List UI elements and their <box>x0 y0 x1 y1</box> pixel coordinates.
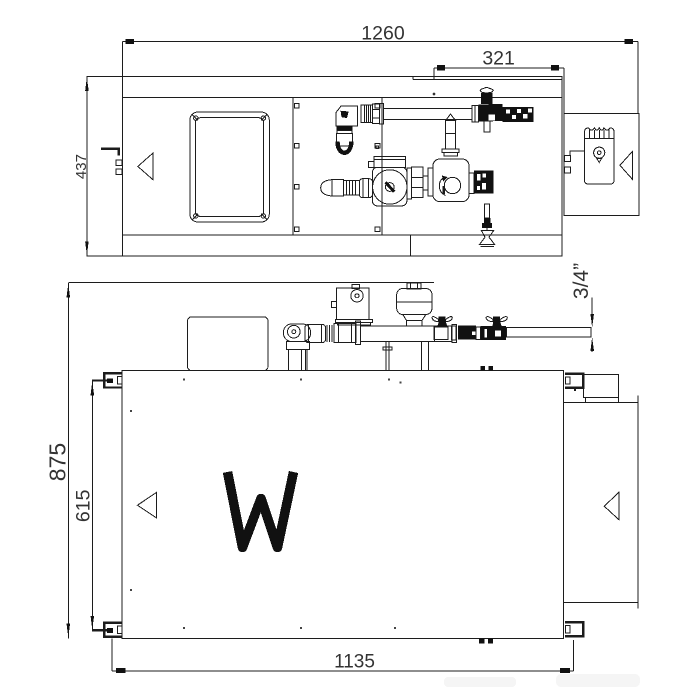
svg-text:1135: 1135 <box>334 652 375 673</box>
svg-text:615: 615 <box>72 489 94 522</box>
svg-text:3/4”: 3/4” <box>570 263 593 299</box>
svg-text:437: 437 <box>73 154 90 179</box>
svg-text:875: 875 <box>45 443 71 481</box>
svg-text:321: 321 <box>482 47 515 69</box>
svg-text:1260: 1260 <box>361 23 405 45</box>
